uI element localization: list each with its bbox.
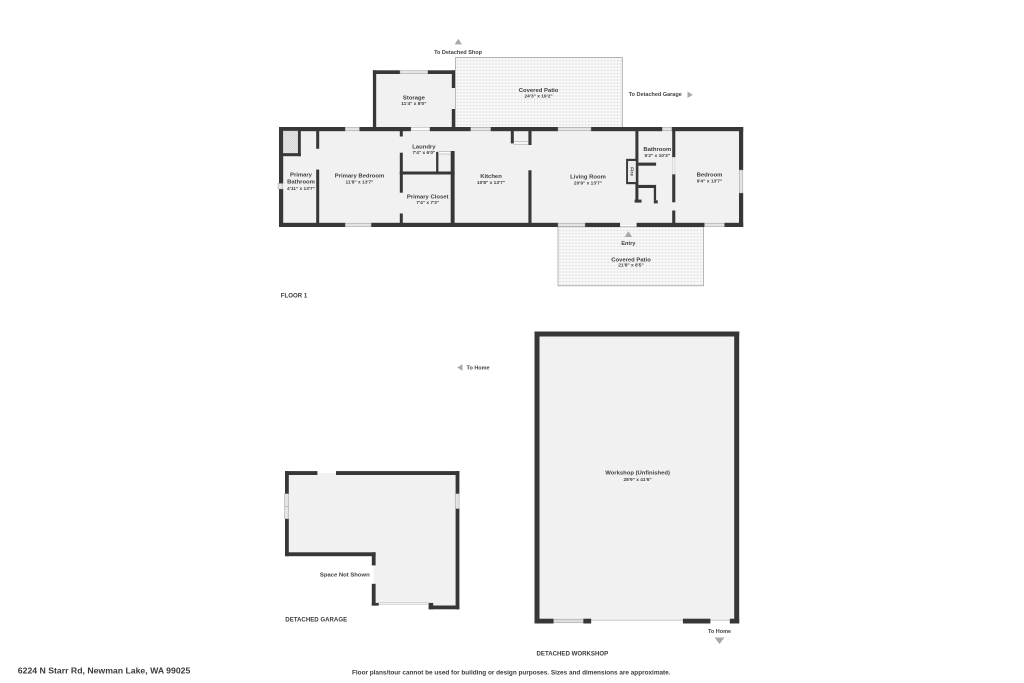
- svg-text:5'2" x 10'3": 5'2" x 10'3": [645, 153, 671, 159]
- svg-text:Covered Patio: Covered Patio: [519, 88, 559, 94]
- svg-text:28'9" x 41'6": 28'9" x 41'6": [624, 477, 652, 483]
- svg-text:20'9" x 13'7": 20'9" x 13'7": [574, 180, 602, 186]
- svg-text:Primary Bedroom: Primary Bedroom: [335, 174, 384, 180]
- svg-text:FLOOR 1: FLOOR 1: [281, 293, 308, 300]
- svg-text:Kitchen: Kitchen: [480, 174, 502, 180]
- svg-text:Space Not Shown: Space Not Shown: [320, 573, 370, 579]
- svg-text:Workshop (Unfinished): Workshop (Unfinished): [605, 470, 670, 476]
- svg-text:DETACHED WORKSHOP: DETACHED WORKSHOP: [537, 650, 609, 657]
- svg-text:Entry: Entry: [621, 241, 636, 247]
- svg-text:Fire: Fire: [628, 167, 634, 176]
- svg-text:4'11" x 13'7": 4'11" x 13'7": [287, 186, 315, 192]
- svg-text:11'8" x 13'7": 11'8" x 13'7": [346, 180, 374, 186]
- svg-text:DETACHED GARAGE: DETACHED GARAGE: [285, 617, 347, 624]
- svg-text:To Detached Shop: To Detached Shop: [434, 50, 483, 56]
- svg-text:9'4" x 13'7": 9'4" x 13'7": [697, 179, 723, 185]
- svg-text:To Home: To Home: [708, 629, 731, 635]
- svg-text:Primary Closet: Primary Closet: [407, 195, 449, 201]
- svg-text:To Home: To Home: [467, 365, 490, 371]
- svg-text:7'4" x 7'3": 7'4" x 7'3": [416, 200, 439, 206]
- svg-text:Storage: Storage: [403, 95, 426, 101]
- svg-text:Bathroom: Bathroom: [643, 147, 671, 153]
- svg-text:7'4" x 6'0": 7'4" x 6'0": [412, 150, 435, 156]
- svg-text:Bathroom: Bathroom: [287, 180, 315, 186]
- svg-text:Bedroom: Bedroom: [697, 173, 723, 179]
- svg-text:21'8" x 8'5": 21'8" x 8'5": [618, 262, 644, 268]
- svg-text:Living Room: Living Room: [570, 175, 606, 181]
- svg-text:Primary: Primary: [290, 173, 313, 179]
- svg-text:Floor plans/tour cannot be use: Floor plans/tour cannot be used for buil…: [352, 669, 671, 676]
- svg-text:To Detached Garage: To Detached Garage: [629, 92, 682, 98]
- svg-text:Laundry: Laundry: [412, 145, 436, 151]
- svg-text:10'8" x 13'7": 10'8" x 13'7": [477, 180, 505, 186]
- svg-text:11'4" x 8'0": 11'4" x 8'0": [401, 101, 426, 107]
- svg-text:6224 N Starr Rd, Newman Lake,: 6224 N Starr Rd, Newman Lake, WA 99025: [18, 666, 191, 676]
- svg-text:24'3" x 19'2": 24'3" x 19'2": [525, 94, 553, 100]
